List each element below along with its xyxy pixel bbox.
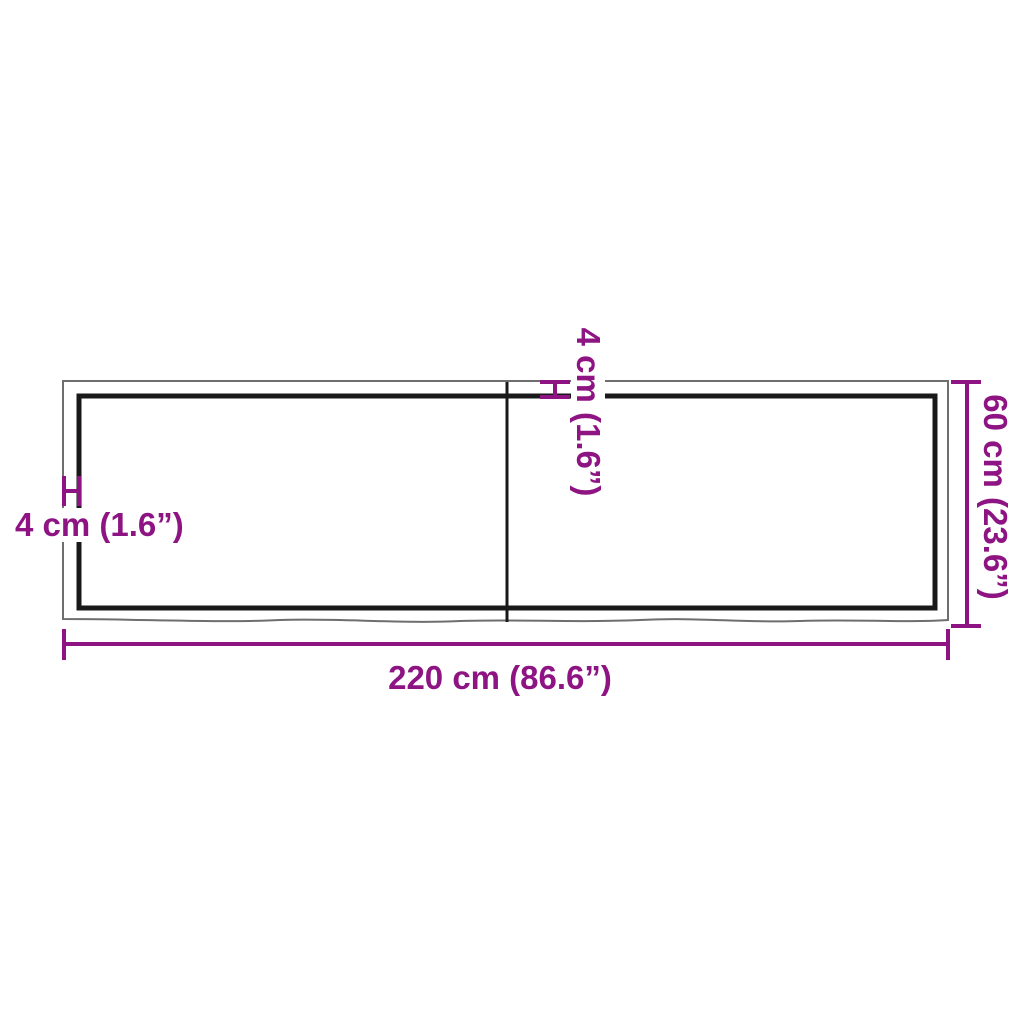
thickness-bracket-left: [62, 476, 81, 506]
height-label: 60 cm (23.6”): [978, 390, 1012, 603]
thickness-label-left: 4 cm (1.6”): [11, 508, 188, 542]
width-dimension-line: [64, 629, 948, 660]
thickness-label-top: 4 cm (1.6”): [571, 324, 605, 501]
dimension-diagram: 4 cm (1.6”) 4 cm (1.6”) 60 cm (23.6”) 22…: [0, 0, 1024, 1024]
thickness-bracket-top: [540, 380, 570, 399]
width-label: 220 cm (86.6”): [382, 661, 618, 695]
